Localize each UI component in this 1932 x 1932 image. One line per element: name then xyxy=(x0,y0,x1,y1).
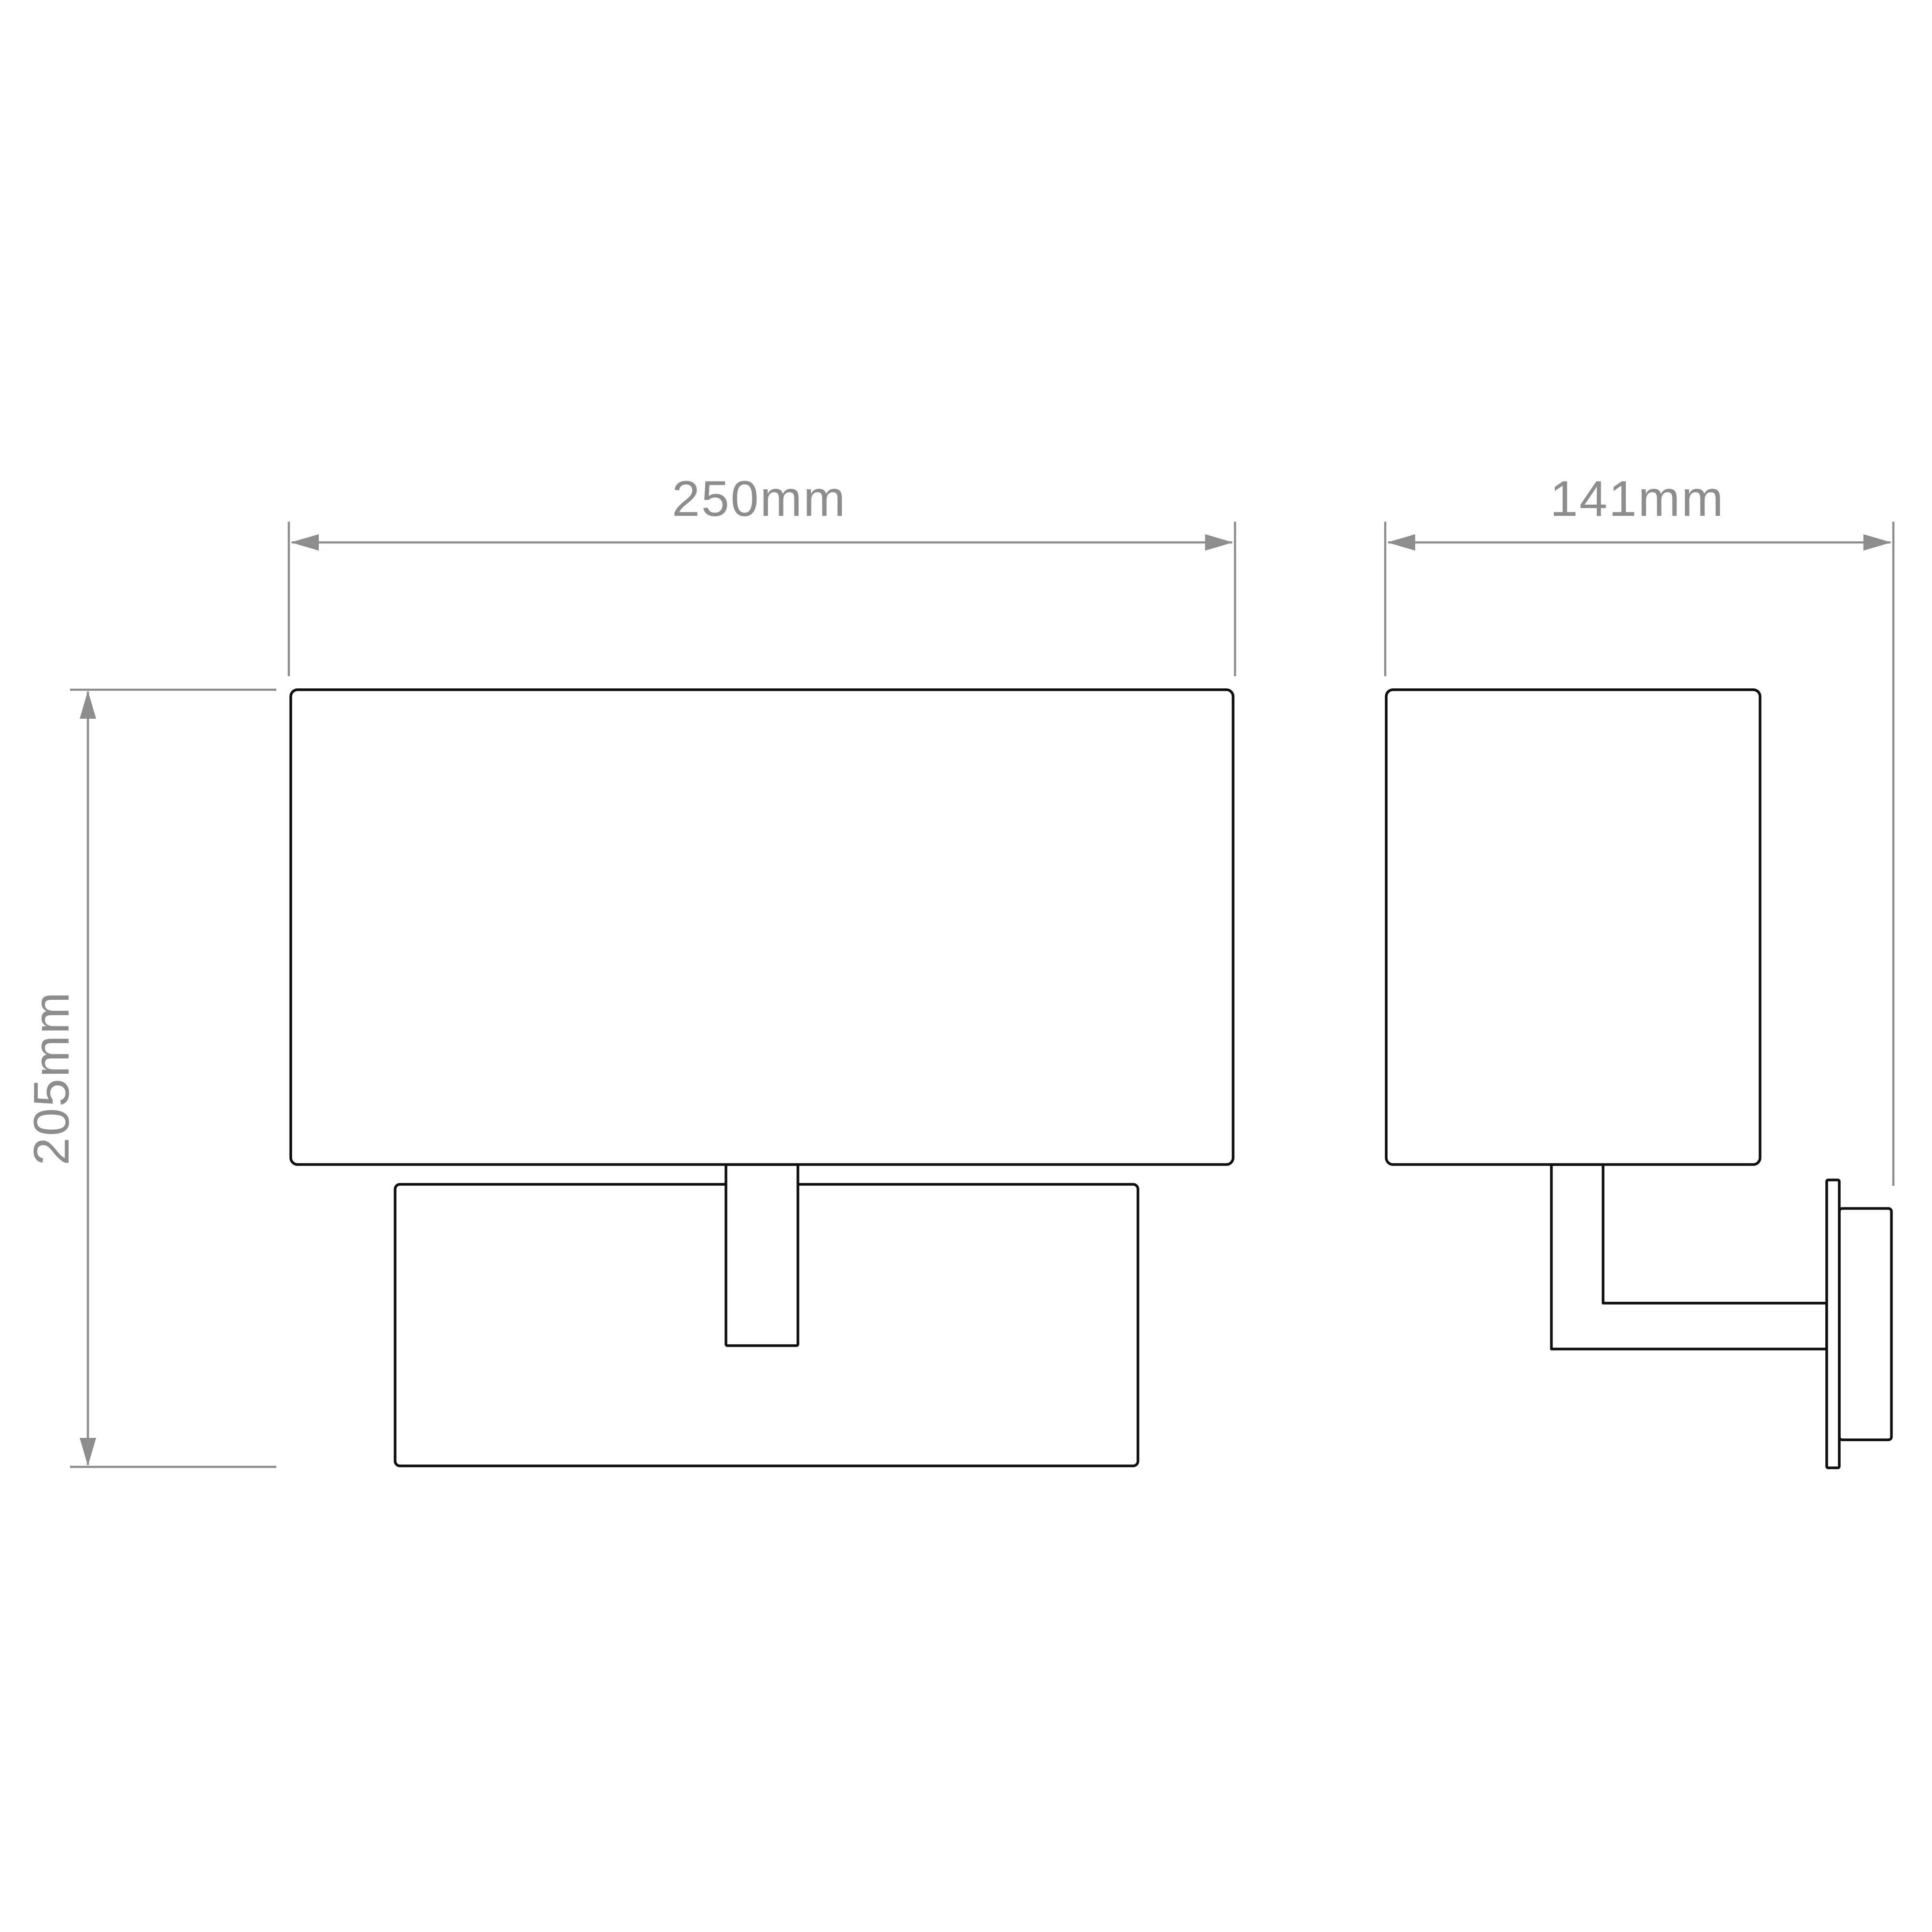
side-mounting-box-outline xyxy=(1839,1208,1891,1440)
height-dimension-label: 205mm xyxy=(24,991,80,1165)
width-dimension-label: 250mm xyxy=(672,471,847,527)
depth-dimension-label: 141mm xyxy=(1550,471,1725,527)
front-stem-outline xyxy=(726,1165,798,1346)
height-arrowhead-top-icon xyxy=(80,691,96,719)
front-shade-outline xyxy=(291,690,1233,1165)
depth-arrowhead-left-icon xyxy=(1387,534,1415,551)
width-arrowhead-left-icon xyxy=(291,534,319,551)
wall-light-dimension-drawing: 250mm 141mm 205mm xyxy=(0,0,1932,1932)
height-arrowhead-bottom-icon xyxy=(80,1438,96,1466)
height-dimension: 205mm xyxy=(24,690,276,1467)
drawing-canvas: 250mm 141mm 205mm xyxy=(0,0,1932,1932)
side-arm-outline xyxy=(1551,1165,1827,1349)
front-view xyxy=(291,690,1233,1466)
side-wallplate-outline xyxy=(1827,1180,1839,1468)
depth-arrowhead-right-icon xyxy=(1863,534,1891,551)
width-arrowhead-right-icon xyxy=(1205,534,1233,551)
side-shade-outline xyxy=(1386,690,1760,1165)
width-dimension: 250mm xyxy=(289,471,1235,676)
side-view xyxy=(1386,690,1891,1468)
